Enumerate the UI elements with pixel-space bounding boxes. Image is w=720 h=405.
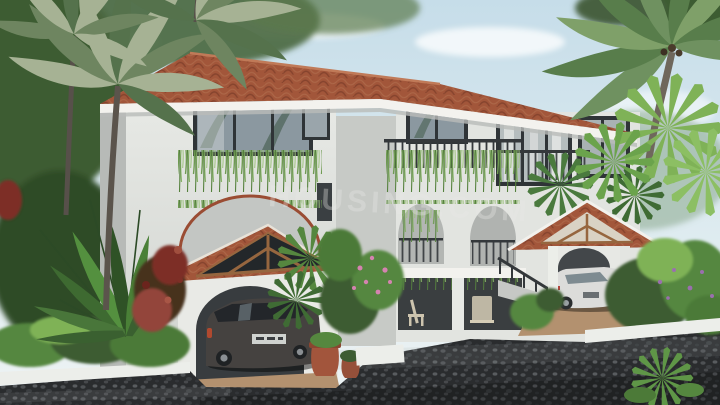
property-photo: HOUSING.COM [0,0,720,405]
veranda [394,268,526,330]
villa-render: HOUSING.COM [0,0,720,405]
porch-chair [470,296,494,323]
tail-light [207,328,212,338]
planter-box [355,344,404,365]
license-plate [583,292,599,298]
